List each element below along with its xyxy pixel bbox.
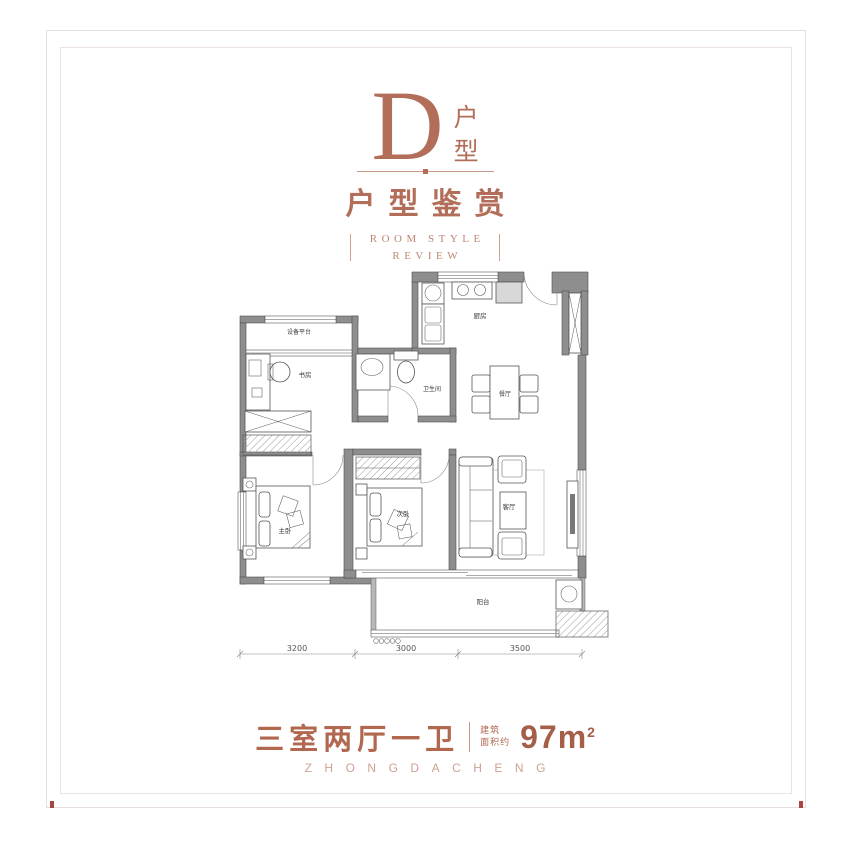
spec-row: 三室两厅一卫 建筑 面积约 97m2 [255,716,595,758]
hall-closet [243,411,311,455]
dimension-right: 3500 [510,644,530,653]
area-label: 建筑 面积约 [480,725,510,748]
area-value: 97m [520,719,587,755]
area-value-wrap: 97m2 [520,719,595,756]
footer: 三室两厅一卫 建筑 面积约 97m2 ZHONGDACHENG [0,716,850,775]
room-label-second-bedroom: 次卧 [397,509,411,518]
room-label-living-room: 客厅 [503,502,517,511]
room-label-balcony: 阳台 [477,597,490,606]
bathroom-furniture [356,351,418,390]
kitchen-furniture [422,282,522,344]
area-superscript: 2 [587,724,595,740]
room-label-study: 书房 [299,370,312,379]
spec-divider [469,722,470,752]
room-label-dining: 餐厅 [499,390,511,398]
area-label-bottom: 面积约 [480,737,510,749]
living-room-furniture [459,456,578,559]
dimension-left: 3200 [287,644,307,653]
page: D 户 型 户型鉴赏 ROOM STYLE REVIEW [0,0,850,843]
dimension-line: 3200 3000 3500 [237,644,585,659]
room-label-bathroom: 卫生间 [423,385,441,393]
study-furniture [246,354,290,410]
layout-text: 三室两厅一卫 [255,716,459,758]
master-bedroom-furniture [243,478,310,559]
dimension-middle: 3000 [396,644,416,653]
room-label-kitchen: 厨房 [474,311,487,320]
room-label-equipment-platform: 设备平台 [287,328,311,336]
shaft-column [569,293,581,353]
area-label-top: 建筑 [480,725,510,737]
second-bedroom-furniture [356,457,422,559]
room-label-master-bedroom: 主卧 [279,526,293,535]
brand-name: ZHONGDACHENG [0,761,850,775]
